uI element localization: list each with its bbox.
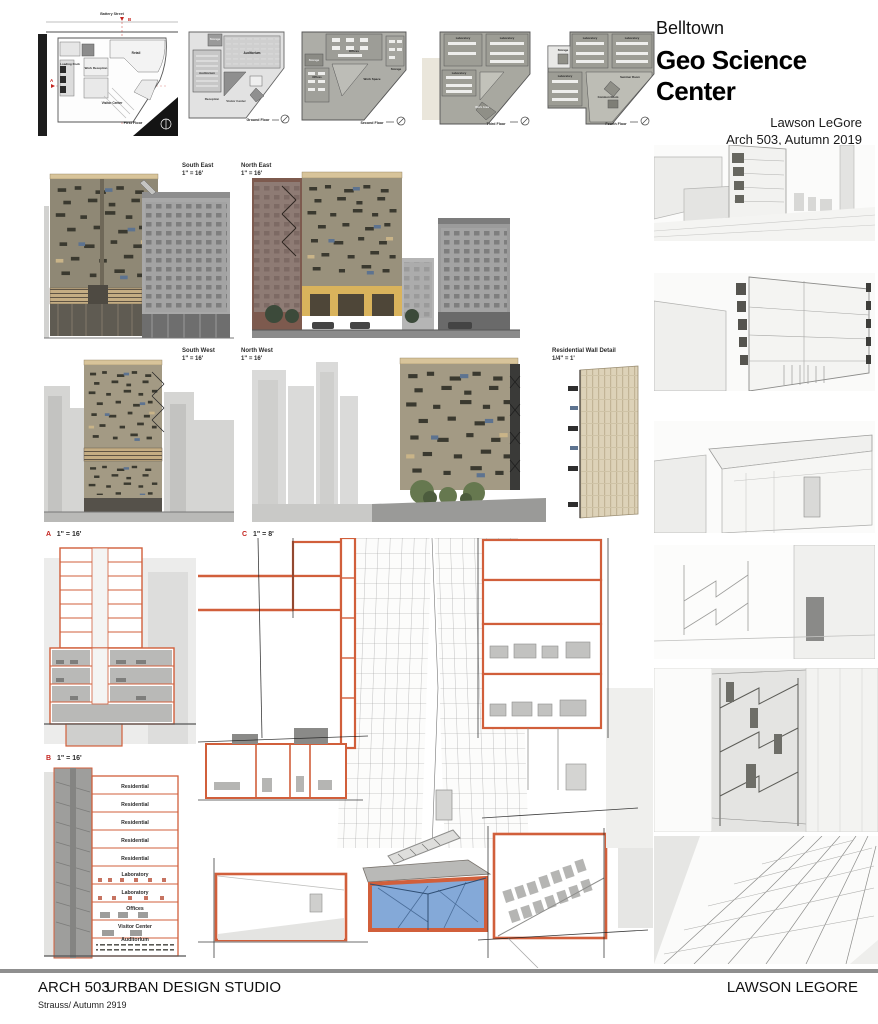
plan-ground-floor-drawing: Storage Auditorium Auditorium Reception … [184,28,292,126]
render-corner-closeup [654,273,875,391]
elevation-south-west [44,352,234,522]
section-room-label: Residential [121,838,149,844]
render-atrium [654,668,878,832]
section-label-c: C 1" = 8' [242,531,274,538]
north-arrow-icon [386,117,405,125]
north-arrow-icon [272,115,289,123]
render-street-view [654,145,875,241]
presentation-board: Belltown Geo Science Center Lawson LeGor… [0,0,878,1024]
footer-rule [0,969,878,973]
north-arrow-icon [510,117,529,125]
plan-fourth-floor-drawing: Storage Laboratory Laboratory Laboratory… [546,28,664,128]
elevation-north-west-drawing [252,352,546,522]
render-skylight-view-image [654,836,878,964]
elevation-south-east [44,166,234,344]
section-room-label: Residential [121,784,149,790]
section-room-label: Offices [126,906,144,912]
svg-text:B: B [128,17,132,22]
elevation-label-wall-detail: Residential Wall Detail 1/4" = 1' [552,348,616,363]
section-marker-a: A [46,531,51,538]
render-atrium-image [654,668,878,832]
section-marker-c: C [242,531,247,538]
section-room-label: Residential [121,856,149,862]
elevation-south-west-drawing [44,352,234,522]
section-b: Residential Residential Residential Resi… [44,764,186,962]
title-block: Belltown Geo Science Center Lawson LeGor… [656,18,862,147]
room-label: Visitor Center [226,99,246,103]
room-label: Offices [349,49,360,53]
footer-studio: URBAN DESIGN STUDIO [106,979,281,996]
elevation-south-east-drawing [44,166,234,344]
room-label: Storage [558,48,569,52]
room-label: Common Room [598,95,619,99]
section-room-label: Auditorium [121,937,149,943]
plan-ground-floor: Storage Auditorium Auditorium Reception … [184,28,292,126]
section-marker-b: B [46,755,51,762]
svg-text:A: A [50,78,54,83]
render-roof-plane [654,421,875,533]
room-label: Storage [309,58,320,62]
room-label: Laboratory [625,36,640,40]
room-label: Auditorium [199,71,215,75]
street-label: Battery Street [100,12,124,16]
section-room-label: Residential [121,820,149,826]
room-label: Auditorium [244,51,261,55]
section-b-drawing: Residential Residential Residential Resi… [44,764,186,962]
render-corner-closeup-image [654,273,875,391]
wall-detail [556,364,646,522]
room-label: Work Area [475,105,489,109]
room-label: Laboratory [456,36,471,40]
room-label: Offices [312,75,322,79]
room-label: Visitor Center [102,101,124,105]
section-room-label: Laboratory [121,890,148,896]
plan-caption: Second Floor [361,121,385,125]
plan-second-floor-drawing: Offices Storage Offices Work Space Stora… [298,28,414,128]
section-c [198,538,653,968]
plan-third-floor-drawing: Laboratory Laboratory Laboratory Work Ar… [418,28,540,128]
room-label: Retail [132,51,141,55]
room-label: Work Reception [85,66,108,70]
render-skylight-view [654,836,878,964]
render-stair-wall [654,545,875,659]
room-label: Seminar Room [620,75,640,79]
section-label-a: A 1" = 16' [46,531,81,538]
render-roof-plane-image [654,421,875,533]
room-label: Reception [205,97,220,101]
room-label: Laboratory [558,74,573,78]
render-street-view-image [654,145,875,241]
plan-caption: Ground Floor [247,118,271,122]
footer-course: ARCH 503 [38,979,110,996]
plan-second-floor: Offices Storage Offices Work Space Stora… [298,28,414,128]
footer-name: LAWSON LEGORE [727,979,858,996]
section-label-b: B 1" = 16' [46,755,82,762]
plan-caption: Third Floor [487,122,507,126]
room-label: Storage [391,67,402,71]
footer-credit: Strauss/ Autumn 2919 [38,1000,127,1010]
section-c-drawing [198,538,653,968]
plan-caption: First Floor [124,121,143,125]
author-name: Lawson LeGore [656,115,862,130]
plan-first-floor: Battery Street B A [38,2,178,138]
north-arrow-icon [630,117,649,125]
elevation-north-west [252,352,546,522]
plan-fourth-floor: Storage Laboratory Laboratory Laboratory… [546,28,664,128]
section-a [44,542,196,754]
neighborhood-label: Belltown [656,18,862,39]
section-room-label: Visitor Center [118,924,152,930]
pool [370,878,486,930]
room-label: Storage [210,37,221,41]
project-title: Geo Science Center [656,45,862,107]
room-label: Laboratory [500,36,515,40]
render-stair-wall-image [654,545,875,659]
wall-detail-drawing [556,364,646,522]
section-a-drawing [44,542,196,754]
room-label: Work Space [363,77,380,81]
elevation-north-east [252,166,520,344]
section-room-label: Residential [121,802,149,808]
room-label: Laboratory [452,71,467,75]
room-label: Laboratory [583,36,598,40]
plan-first-floor-drawing: Battery Street B A [38,2,178,138]
room-label: Loading Dock [60,62,80,66]
plan-caption: Fourth Floor [605,122,627,126]
section-room-label: Laboratory [121,872,148,878]
plan-third-floor: Laboratory Laboratory Laboratory Work Ar… [418,28,540,128]
elevation-north-east-drawing [252,166,520,344]
